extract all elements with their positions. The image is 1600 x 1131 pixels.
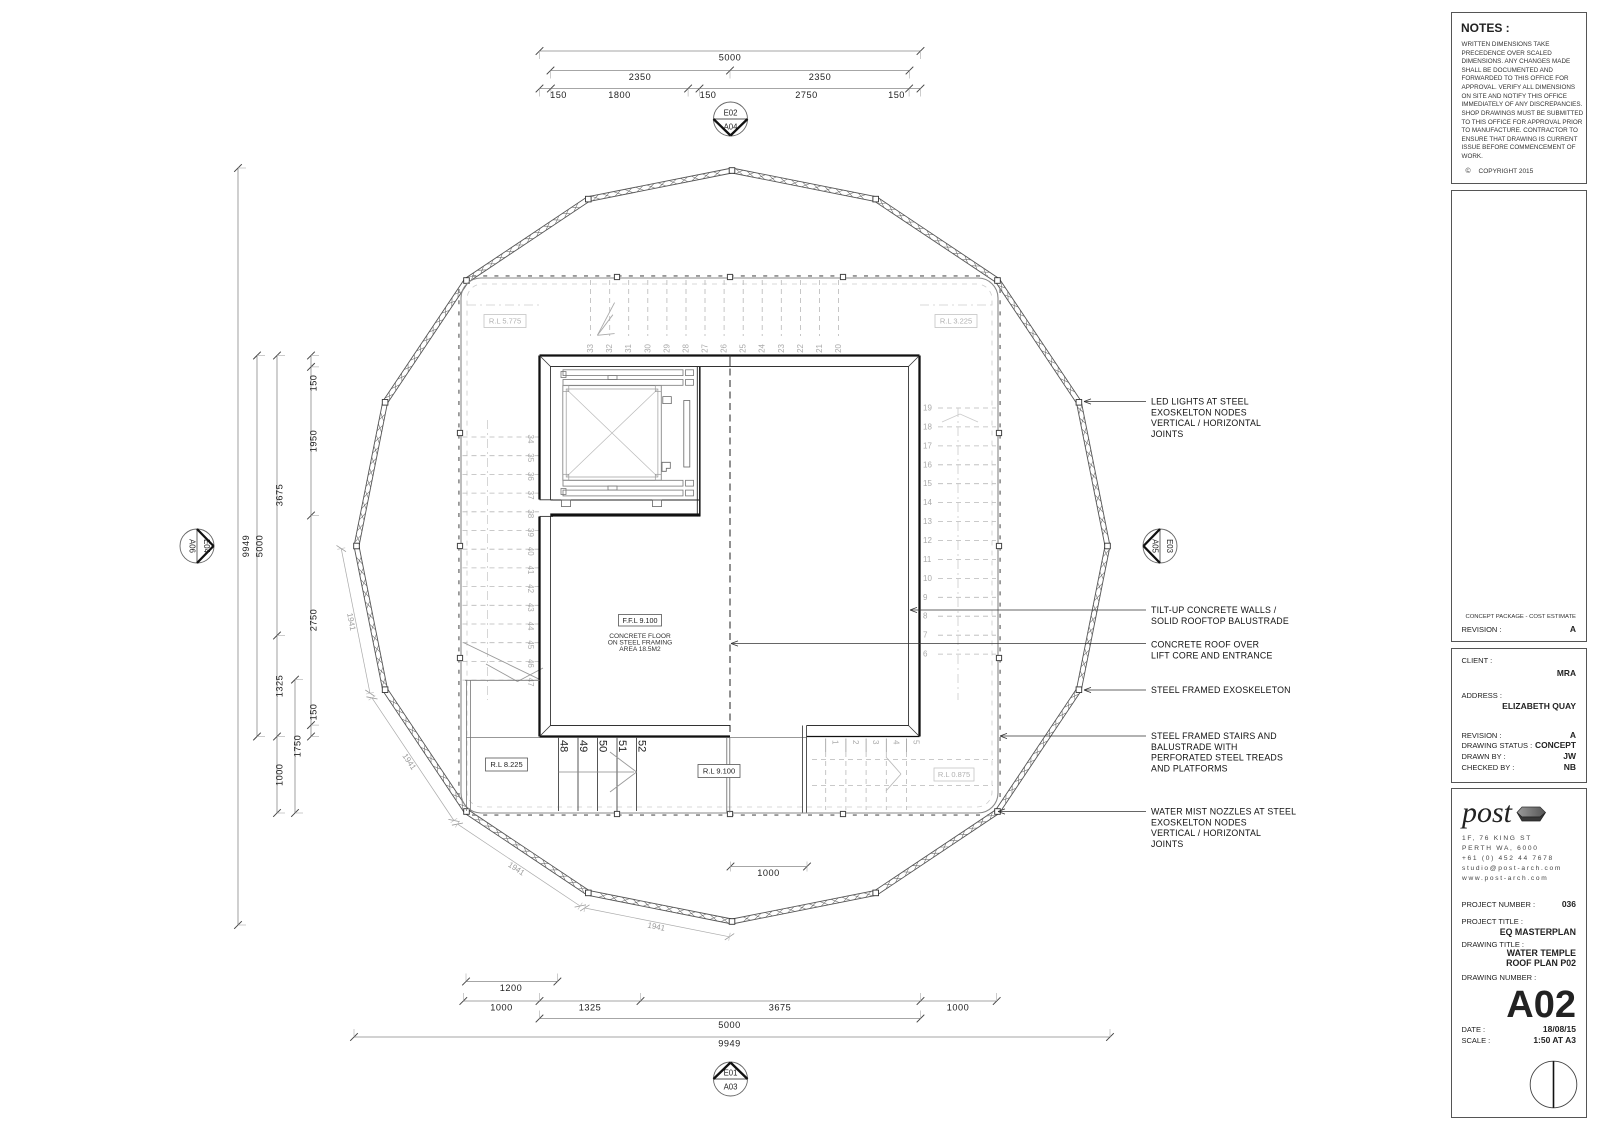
- svg-text:AREA 18.5M2: AREA 18.5M2: [619, 646, 661, 653]
- svg-text:CONCRETE ROOF OVER: CONCRETE ROOF OVER: [1151, 640, 1259, 650]
- svg-text:SOLID ROOFTOP BALUSTRADE: SOLID ROOFTOP BALUSTRADE: [1151, 616, 1289, 626]
- svg-text:35: 35: [526, 453, 535, 462]
- svg-text:29: 29: [662, 343, 671, 352]
- svg-text:42: 42: [526, 584, 535, 593]
- svg-text:32: 32: [605, 343, 614, 352]
- svg-text:LIFT CORE AND ENTRANCE: LIFT CORE AND ENTRANCE: [1151, 650, 1273, 660]
- svg-text:E01: E01: [724, 1069, 738, 1078]
- svg-text:5000: 5000: [719, 53, 741, 63]
- svg-text:4: 4: [891, 740, 900, 745]
- svg-text:3675: 3675: [769, 1003, 791, 1013]
- svg-text:31: 31: [624, 343, 633, 352]
- svg-text:150: 150: [888, 90, 905, 100]
- svg-text:R.L 8.225: R.L 8.225: [490, 760, 522, 769]
- svg-text:16: 16: [923, 460, 932, 469]
- svg-text:26: 26: [720, 343, 729, 352]
- svg-text:47: 47: [526, 678, 535, 687]
- svg-text:8: 8: [923, 612, 928, 621]
- svg-text:150: 150: [700, 90, 717, 100]
- svg-text:34: 34: [526, 435, 535, 444]
- svg-text:11: 11: [923, 555, 932, 564]
- svg-text:30: 30: [643, 343, 652, 352]
- svg-text:150: 150: [550, 90, 567, 100]
- svg-text:E02: E02: [724, 109, 738, 118]
- svg-text:37: 37: [526, 491, 535, 500]
- svg-text:13: 13: [923, 517, 932, 526]
- svg-text:28: 28: [682, 343, 691, 352]
- svg-text:1800: 1800: [608, 90, 630, 100]
- svg-text:JOINTS: JOINTS: [1151, 839, 1183, 849]
- svg-text:STEEL FRAMED EXOSKELETON: STEEL FRAMED EXOSKELETON: [1151, 685, 1291, 695]
- svg-text:2350: 2350: [809, 72, 831, 82]
- svg-text:51: 51: [616, 740, 628, 752]
- svg-text:R.L 0.875: R.L 0.875: [938, 770, 970, 779]
- svg-text:23: 23: [777, 343, 786, 352]
- svg-text:21: 21: [815, 343, 824, 352]
- svg-text:1000: 1000: [757, 868, 779, 878]
- svg-text:33: 33: [586, 343, 595, 352]
- svg-text:1950: 1950: [309, 430, 319, 452]
- svg-text:5000: 5000: [718, 1020, 740, 1030]
- svg-text:R.L 5.775: R.L 5.775: [489, 317, 521, 326]
- svg-text:F.F.L 9.100: F.F.L 9.100: [623, 616, 658, 625]
- svg-text:1000: 1000: [490, 1003, 512, 1013]
- svg-text:38: 38: [526, 509, 535, 518]
- svg-text:1200: 1200: [500, 983, 522, 993]
- svg-text:R.L 3.225: R.L 3.225: [940, 317, 972, 326]
- svg-text:2: 2: [851, 740, 860, 745]
- svg-text:19: 19: [923, 404, 932, 413]
- svg-text:36: 36: [526, 472, 535, 481]
- svg-text:22: 22: [796, 343, 805, 352]
- svg-text:45: 45: [526, 640, 535, 649]
- svg-text:40: 40: [526, 547, 535, 556]
- svg-text:50: 50: [597, 740, 609, 752]
- svg-text:1000: 1000: [275, 764, 285, 786]
- svg-text:1941: 1941: [647, 921, 667, 933]
- svg-text:2750: 2750: [309, 609, 319, 631]
- svg-text:VERTICAL / HORIZONTAL: VERTICAL / HORIZONTAL: [1151, 828, 1261, 838]
- svg-text:1941: 1941: [400, 752, 418, 772]
- svg-text:1941: 1941: [506, 860, 526, 878]
- svg-text:39: 39: [526, 528, 535, 537]
- svg-text:9: 9: [923, 593, 928, 602]
- svg-text:5: 5: [912, 740, 921, 745]
- svg-text:6: 6: [923, 650, 928, 659]
- svg-text:R.L 9.100: R.L 9.100: [703, 767, 735, 776]
- svg-text:AND PLATFORMS: AND PLATFORMS: [1151, 763, 1228, 773]
- svg-text:1325: 1325: [579, 1003, 601, 1013]
- svg-text:52: 52: [636, 740, 648, 752]
- svg-text:150: 150: [309, 375, 319, 392]
- svg-text:1941: 1941: [345, 612, 357, 632]
- svg-text:A05: A05: [1151, 539, 1160, 554]
- svg-text:7: 7: [923, 631, 928, 640]
- svg-text:1: 1: [831, 740, 840, 745]
- svg-text:EXOSKELTON NODES: EXOSKELTON NODES: [1151, 407, 1247, 417]
- svg-text:A06: A06: [188, 539, 197, 553]
- svg-text:VERTICAL / HORIZONTAL: VERTICAL / HORIZONTAL: [1151, 418, 1261, 428]
- svg-text:5000: 5000: [255, 535, 265, 557]
- svg-text:150: 150: [309, 704, 319, 721]
- svg-text:A03: A03: [724, 1083, 738, 1092]
- svg-text:24: 24: [758, 343, 767, 352]
- svg-text:TILT-UP CONCRETE WALLS /: TILT-UP CONCRETE WALLS /: [1151, 605, 1277, 615]
- svg-text:15: 15: [923, 479, 932, 488]
- svg-text:41: 41: [526, 565, 535, 574]
- svg-text:44: 44: [526, 622, 535, 631]
- svg-text:BALUSTRADE WITH: BALUSTRADE WITH: [1151, 742, 1238, 752]
- svg-text:2750: 2750: [795, 90, 817, 100]
- svg-text:48: 48: [558, 740, 570, 752]
- svg-text:9949: 9949: [241, 535, 251, 557]
- svg-text:12: 12: [923, 536, 932, 545]
- svg-text:STEEL FRAMED STAIRS AND: STEEL FRAMED STAIRS AND: [1151, 731, 1277, 741]
- svg-text:1750: 1750: [293, 735, 303, 757]
- svg-text:18: 18: [923, 422, 932, 431]
- svg-text:27: 27: [701, 343, 710, 352]
- svg-text:3: 3: [871, 740, 880, 745]
- svg-text:3675: 3675: [275, 484, 285, 506]
- svg-text:9949: 9949: [718, 1039, 740, 1049]
- svg-text:46: 46: [526, 659, 535, 668]
- svg-text:20: 20: [834, 343, 843, 352]
- svg-text:EXOSKELTON NODES: EXOSKELTON NODES: [1151, 817, 1247, 827]
- svg-text:2350: 2350: [629, 72, 651, 82]
- svg-text:LED LIGHTS AT STEEL: LED LIGHTS AT STEEL: [1151, 397, 1249, 407]
- svg-text:14: 14: [923, 498, 932, 507]
- svg-text:JOINTS: JOINTS: [1151, 429, 1183, 439]
- svg-text:E03: E03: [1165, 539, 1174, 553]
- svg-text:WATER MIST NOZZLES AT STEEL: WATER MIST NOZZLES AT STEEL: [1151, 807, 1296, 817]
- svg-text:1325: 1325: [275, 675, 285, 697]
- svg-text:1000: 1000: [947, 1003, 969, 1013]
- svg-text:17: 17: [923, 441, 932, 450]
- svg-text:PERFORATED STEEL TREADS: PERFORATED STEEL TREADS: [1151, 753, 1283, 763]
- svg-text:49: 49: [577, 740, 589, 752]
- svg-text:43: 43: [526, 603, 535, 612]
- svg-text:25: 25: [739, 343, 748, 352]
- svg-text:10: 10: [923, 574, 932, 583]
